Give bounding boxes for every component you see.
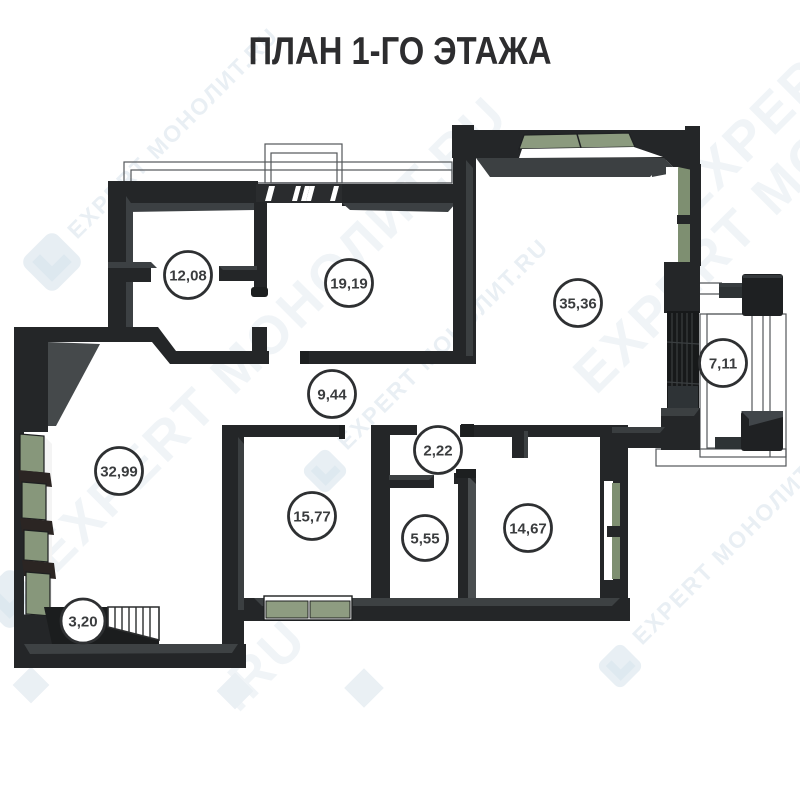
svg-text:15,77: 15,77 <box>293 509 331 526</box>
svg-text:9,44: 9,44 <box>317 387 347 404</box>
svg-text:5,55: 5,55 <box>410 531 439 548</box>
svg-text:2,22: 2,22 <box>423 443 452 460</box>
svg-text:14,67: 14,67 <box>509 521 547 538</box>
svg-text:12,08: 12,08 <box>169 268 207 285</box>
svg-text:ПЛАН 1-ГО ЭТАЖА: ПЛАН 1-ГО ЭТАЖА <box>249 30 552 73</box>
svg-text:35,36: 35,36 <box>559 296 597 313</box>
svg-text:3,20: 3,20 <box>68 614 97 631</box>
svg-text:7,11: 7,11 <box>709 356 737 373</box>
svg-text:19,19: 19,19 <box>330 276 368 293</box>
svg-text:32,99: 32,99 <box>100 464 138 481</box>
